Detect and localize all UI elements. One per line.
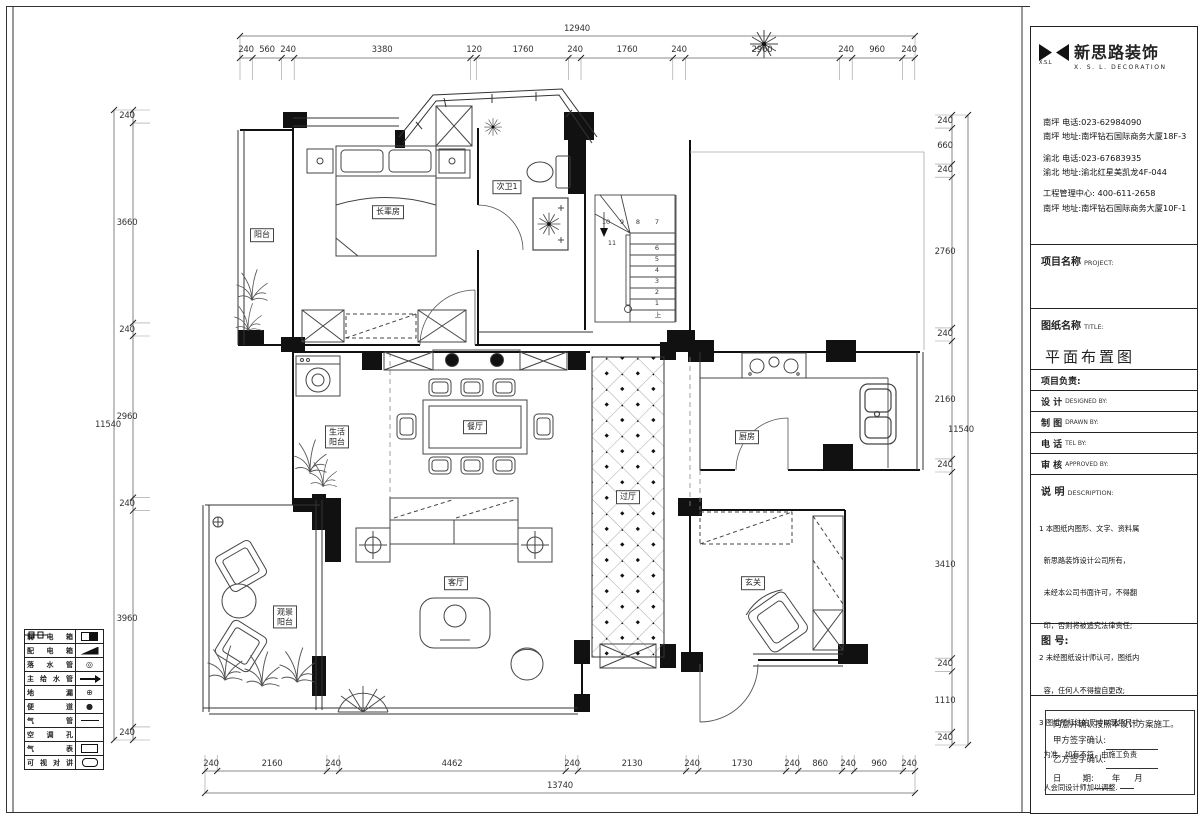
ceiling-light	[484, 118, 502, 136]
dim-right-segment: 240	[937, 329, 953, 339]
plant	[237, 270, 268, 301]
wall-blocks	[238, 112, 868, 712]
dim-right-segment: 240	[937, 116, 953, 126]
stair-step-number: 9	[620, 218, 624, 226]
bedroom-door	[420, 290, 475, 345]
room-label-kitchen: 厨房	[735, 430, 759, 444]
dim-right-segment: 2760	[935, 247, 956, 257]
legend-label: 气管	[27, 716, 73, 726]
legend-label: 空调孔	[27, 730, 73, 740]
dim-top-segment: 240	[838, 45, 854, 55]
room-label-dining: 餐厅	[463, 420, 487, 434]
dim-top-segment: 120	[466, 45, 482, 55]
tv-console	[420, 598, 490, 648]
stair-up-label: 上	[655, 309, 662, 319]
drawn-by-row: 制 图DRAWN BY:	[1031, 411, 1197, 432]
stair-step-number: 4	[655, 266, 659, 274]
room-label-entry: 玄关	[741, 576, 765, 590]
dim-top-segment: 1760	[513, 45, 534, 55]
date-line	[1120, 779, 1134, 789]
stair-step-number: 5	[655, 255, 659, 263]
legend-row: 便道●	[25, 699, 103, 713]
floor-drain-icon: ⊕	[86, 689, 93, 697]
tel-label: 电 话	[1041, 437, 1062, 450]
contact-line: 南坪 地址:南坪钻石国际商务大厦18F-3	[1043, 129, 1186, 143]
stair-step-number: 8	[636, 218, 640, 226]
gas-pipe-icon	[81, 720, 99, 722]
room-label-balcony: 阳台	[250, 228, 274, 242]
dim-bottom-segment: 240	[901, 759, 917, 769]
project-lead-label: 项目负责:	[1041, 374, 1081, 387]
dim-right-segment: 240	[937, 460, 953, 470]
dim-right-total: 11540	[948, 425, 974, 435]
company-logo: X.S.L 新思路装饰 X. S. L. DECORATION	[1039, 39, 1167, 71]
company-name: 新思路装饰	[1074, 39, 1167, 63]
dim-top-segment: 560	[259, 45, 275, 55]
legend-table: 弱电箱 配电箱 落水管◎ 主给水管 地漏⊕ 便道● 气管 空调孔 气表 可视对讲	[24, 629, 104, 770]
roof-outline	[690, 152, 924, 350]
staircase	[595, 195, 676, 322]
vanity-light	[538, 213, 561, 236]
water-supply-pipe-icon	[80, 678, 100, 680]
bath-door	[478, 205, 523, 250]
stair-down-arrow	[600, 228, 608, 237]
dim-bottom-segment: 2160	[262, 759, 283, 769]
description-section: 说 明DESCRIPTION: 1 本图纸内图形、文字、资料属 新思路装饰设计公…	[1031, 474, 1197, 623]
project-name-label-en: PROJECT:	[1084, 259, 1114, 267]
stove	[742, 353, 806, 378]
toilet	[527, 156, 570, 188]
legend-label: 落水管	[27, 660, 73, 670]
figure-number-section: 图 号:	[1031, 623, 1197, 695]
party-b-label: 乙方签字确认:	[1053, 754, 1106, 764]
legend-label: 便道	[27, 702, 73, 712]
lounge-chair	[511, 648, 543, 680]
date-line	[1094, 779, 1112, 789]
dim-left-segment: 240	[119, 728, 135, 738]
dim-bottom-segment: 240	[784, 759, 800, 769]
contact-line: 渝北 电话:023-67683935	[1043, 151, 1186, 165]
room-label-hall: 过厅	[616, 490, 640, 504]
dim-right-segment: 240	[937, 733, 953, 743]
plant	[208, 646, 242, 680]
toilet-outlet-icon: ●	[86, 703, 93, 711]
dim-top-segment: 240	[901, 45, 917, 55]
wardrobe	[302, 310, 466, 342]
year-label: 年	[1112, 773, 1120, 783]
legend-row: 气表	[25, 741, 103, 755]
dim-bottom-segment: 960	[871, 759, 887, 769]
party-b-signature-line	[1106, 759, 1158, 769]
dim-bottom-segment: 860	[812, 759, 828, 769]
room-label-living: 客厅	[444, 576, 468, 590]
party-a-signature-line	[1106, 740, 1158, 750]
plant	[310, 460, 337, 487]
dim-top-segment: 240	[280, 45, 296, 55]
description-label-en: DESCRIPTION:	[1067, 489, 1113, 497]
legend-label: 地漏	[27, 688, 73, 698]
weak-power-box-icon	[81, 632, 98, 641]
dim-right-segment: 240	[937, 165, 953, 175]
logo-mark-text: X.S.L	[1039, 60, 1052, 66]
note-line: 未经本公司书面许可，不得翻	[1039, 588, 1189, 599]
project-name-label: 项目名称	[1041, 257, 1081, 268]
room-label-line: 阳台	[277, 617, 293, 627]
dim-bottom-segment: 2130	[622, 759, 643, 769]
sheet-title: 平面布置图	[1045, 346, 1197, 367]
room-label-line: 阳台	[329, 437, 345, 447]
distribution-box-icon	[81, 647, 99, 655]
date-label: 日 期:	[1053, 773, 1094, 783]
legend-row: 可视对讲	[25, 755, 103, 769]
dim-bottom-segment: 1730	[732, 759, 753, 769]
walls	[240, 118, 920, 712]
dim-bottom-total: 13740	[547, 781, 573, 791]
downpipe-icon: ◎	[86, 661, 93, 669]
sheet-name-label: 图纸名称	[1041, 321, 1081, 332]
dim-top-segment: 240	[567, 45, 583, 55]
contact-line: 南坪 电话:023-62984090	[1043, 115, 1186, 129]
stair-step-number: 6	[655, 244, 659, 252]
dim-left-segment: 240	[119, 499, 135, 509]
plant	[294, 440, 326, 472]
legend-row: 主给水管	[25, 671, 103, 685]
room-label-elder-room: 长辈房	[372, 205, 404, 219]
description-label: 说 明	[1041, 487, 1064, 498]
stair-step-number: 1	[655, 299, 659, 307]
contact-line: 渝北 地址:渝北红星美凯龙4F-044	[1043, 165, 1186, 179]
party-a-label: 甲方签字确认:	[1053, 735, 1106, 745]
drawn-by-label-en: DRAWN BY:	[1065, 419, 1098, 426]
approved-by-row: 审 核APPROVED BY:	[1031, 453, 1197, 474]
drawn-by-label: 制 图	[1041, 416, 1062, 429]
designed-by-label: 设 计	[1041, 395, 1062, 408]
tel-row: 电 话TEL BY:	[1031, 432, 1197, 453]
room-label-view-balcony: 观景阳台	[273, 605, 297, 628]
legend-row: 落水管◎	[25, 657, 103, 671]
dim-right-segment: 1110	[935, 696, 956, 706]
dim-left-segment: 240	[119, 111, 135, 121]
company-contacts: 南坪 电话:023-62984090 南坪 地址:南坪钻石国际商务大厦18F-3…	[1043, 115, 1186, 215]
title-block: X.S.L 新思路装饰 X. S. L. DECORATION 南坪 电话:02…	[1030, 26, 1198, 814]
plant	[280, 648, 314, 682]
legend-row: 气管	[25, 713, 103, 727]
note-line: 1 本图纸内图形、文字、资料属	[1039, 524, 1189, 535]
room-label-service-balcony: 生活阳台	[325, 425, 349, 448]
agreement-text: 同意并确认按照本设计方案施工。	[1053, 718, 1187, 731]
stair-step-number: 2	[655, 288, 659, 296]
designed-by-row: 设 计DESIGNED BY:	[1031, 390, 1197, 411]
dim-top-total: 12940	[564, 24, 590, 34]
dim-top-segment: 2960	[752, 45, 773, 55]
windows	[203, 89, 923, 714]
figure-number-label: 图 号:	[1041, 636, 1068, 647]
contact-line: 工程管理中心: 400-611-2658	[1043, 186, 1186, 200]
dim-bottom-segment: 240	[203, 759, 219, 769]
legend-label: 可视对讲	[27, 758, 73, 768]
legend-label: 配电箱	[27, 646, 73, 656]
sheet-name-label-en: TITLE:	[1084, 323, 1104, 331]
dim-right-segment: 3410	[935, 560, 956, 570]
month-label: 月	[1134, 773, 1142, 783]
contact-line: 南坪 地址:南坪钻石国际商务大厦10F-1	[1043, 201, 1186, 215]
stair-step-number: 11	[608, 239, 616, 247]
balcony-chairs	[213, 517, 269, 674]
ac-hole-icon	[25, 630, 47, 640]
dim-top-segment: 240	[671, 45, 687, 55]
dim-left-segment: 240	[119, 325, 135, 335]
project-lead-row: 项目负责:	[1031, 369, 1197, 390]
logo-mark-icon: X.S.L	[1039, 44, 1069, 66]
sheet-border	[7, 7, 1031, 813]
stair-step-number: 3	[655, 277, 659, 285]
project-name-section: 项目名称PROJECT:	[1031, 244, 1197, 308]
legend-row: 配电箱	[25, 643, 103, 657]
gas-meter-icon	[81, 744, 98, 753]
dim-right-segment: 660	[937, 141, 953, 151]
signature-section: 同意并确认按照本设计方案施工。 甲方签字确认: 乙方签字确认: 日 期:年月	[1031, 695, 1197, 812]
bay-cabinet	[436, 106, 472, 178]
dim-bottom-segment: 4462	[442, 759, 463, 769]
room-label-line: 生活	[329, 427, 345, 437]
stair-step-number: 7	[655, 218, 659, 226]
hallway-floor	[592, 357, 664, 657]
kitchen-door	[736, 418, 788, 470]
company-name-en: X. S. L. DECORATION	[1074, 64, 1167, 71]
kitchen-sink	[860, 384, 896, 444]
bed	[307, 146, 465, 256]
drawing-sheet: 240 560 240 3380 120 1760 240 1760 240 2…	[0, 0, 1200, 819]
stair-step-number: 10	[602, 218, 610, 226]
legend-row: 空调孔	[25, 727, 103, 741]
dim-top-segment: 960	[869, 45, 885, 55]
entry-armchair	[743, 586, 809, 655]
dim-left-total: 11540	[95, 420, 121, 430]
room-label-line: 观景	[277, 607, 293, 617]
washing-machine	[296, 356, 340, 396]
dim-top-segment: 240	[238, 45, 254, 55]
dim-right-segment: 2160	[935, 395, 956, 405]
video-intercom-icon	[82, 758, 98, 767]
dim-bottom-segment: 240	[564, 759, 580, 769]
dim-bottom-segment: 240	[684, 759, 700, 769]
plant	[235, 304, 262, 331]
designed-by-label-en: DESIGNED BY:	[1065, 398, 1107, 405]
dim-right-segment: 240	[937, 659, 953, 669]
legend-label: 主给水管	[27, 674, 73, 684]
tel-label-en: TEL BY:	[1065, 440, 1086, 447]
approved-by-label-en: APPROVED BY:	[1065, 461, 1108, 468]
sofa	[356, 498, 552, 562]
note-line: 新思路装饰设计公司所有，	[1039, 556, 1189, 567]
dim-bottom-segment: 240	[325, 759, 341, 769]
dim-left-segment: 3660	[117, 218, 138, 228]
dim-left-segment: 3960	[117, 614, 138, 624]
room-label-bath2: 次卫1	[492, 180, 521, 194]
signature-box: 同意并确认按照本设计方案施工。 甲方签字确认: 乙方签字确认: 日 期:年月	[1045, 710, 1195, 795]
dim-top-segment: 3380	[372, 45, 393, 55]
legend-label: 气表	[27, 744, 73, 754]
floor-plan-drawing	[0, 0, 1030, 819]
approved-by-label: 审 核	[1041, 458, 1062, 471]
dim-top-segment: 1760	[617, 45, 638, 55]
entry-cabinet	[700, 512, 843, 650]
entry-door	[700, 664, 758, 722]
dim-bottom-segment: 240	[840, 759, 856, 769]
sheet-name-section: 图纸名称TITLE: 平面布置图	[1031, 308, 1197, 369]
legend-row: 地漏⊕	[25, 685, 103, 699]
